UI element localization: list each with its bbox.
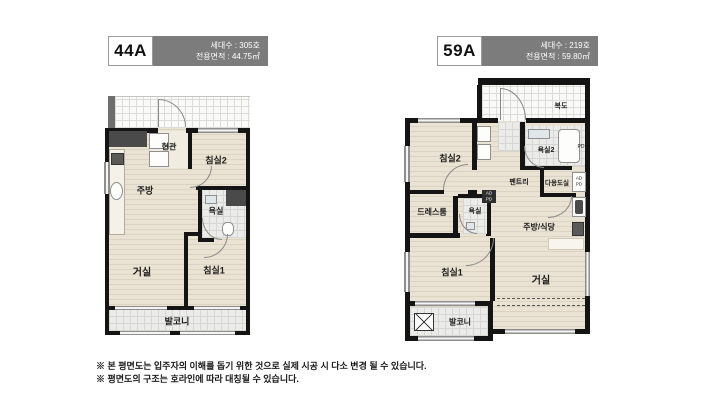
- refrigerator-door: [575, 200, 583, 214]
- room-label-living: 거실: [133, 264, 151, 279]
- room-label-entrance: 현관: [162, 142, 177, 153]
- unit-type-badge-44a: 44A: [108, 36, 153, 66]
- window: [418, 118, 460, 123]
- room-label-bedroom2: 침실2: [439, 152, 461, 165]
- wall: [188, 133, 192, 169]
- room-label-balcony: 발코니: [449, 317, 471, 328]
- disclaimer-line-1: ※ 본 평면도는 입주자의 이해를 돕기 위한 것으로 실제 시공 시 다소 변…: [96, 360, 427, 373]
- room-label-bath: 욕실: [469, 206, 482, 216]
- room-label-bedroom2: 침실2: [205, 154, 227, 167]
- window: [194, 306, 240, 310]
- expansion-dashed-line: [497, 298, 585, 299]
- wall: [453, 196, 458, 234]
- window: [404, 146, 410, 182]
- room-label-utility: 다용도실: [545, 177, 569, 187]
- unit-area: 전용면적 : 59.80㎡: [482, 51, 590, 62]
- escape-hatch-icon: [414, 313, 434, 331]
- unit-info-box-44a: 세대수 : 305호 전용면적 : 44.75㎡: [153, 36, 268, 66]
- room-label-corridor: 복도: [555, 101, 568, 111]
- door-leaf: [500, 88, 501, 120]
- window: [180, 331, 235, 335]
- room-label-balcony: 발코니: [165, 315, 190, 328]
- window: [404, 252, 410, 292]
- closet: [477, 144, 491, 160]
- corridor-59a: [482, 85, 590, 122]
- room-label-bath2: 욕실2: [538, 145, 555, 155]
- stove-icon: [572, 222, 584, 236]
- window: [505, 329, 575, 334]
- expansion-dashed-line: [497, 305, 585, 306]
- kitchen-sink-icon: [110, 182, 123, 200]
- wall: [478, 78, 590, 85]
- duct-label-ad: AD: [576, 176, 582, 181]
- refrigerator-icon: [572, 197, 586, 217]
- window: [415, 301, 475, 306]
- window: [120, 331, 170, 335]
- duct-label-ad: AD: [486, 191, 492, 196]
- window: [104, 162, 110, 194]
- room-label-bath: 욕실: [209, 206, 224, 217]
- room-label-pantry: 펜트리: [509, 177, 528, 187]
- stove-icon: [111, 153, 124, 165]
- sink-icon: [205, 195, 217, 204]
- wall: [540, 168, 544, 196]
- room-label-living: 거실: [532, 272, 550, 287]
- wall: [246, 128, 250, 310]
- closet: [477, 126, 491, 142]
- wall: [488, 301, 493, 341]
- room-label-bedroom1: 침실1: [441, 266, 463, 279]
- wall: [410, 190, 444, 194]
- unit-count: 세대수 : 305호: [153, 40, 260, 51]
- wall: [477, 85, 482, 122]
- unit-area: 전용면적 : 44.75㎡: [153, 51, 260, 62]
- unit-info-box-59a: 세대수 : 219호 전용면적 : 59.80㎡: [482, 36, 598, 66]
- duct-label-pd: PD: [576, 182, 582, 187]
- wall: [184, 232, 188, 306]
- window: [418, 336, 474, 341]
- unit-type-label: 59A: [443, 41, 476, 61]
- shoe-closet: [149, 151, 169, 167]
- wall: [526, 118, 590, 123]
- cabinet-block: [109, 131, 147, 147]
- window: [115, 306, 167, 310]
- duct-label-pd: PD: [578, 144, 585, 150]
- kitchen-counter: [548, 238, 584, 250]
- window: [585, 252, 590, 296]
- room-label-bedroom1: 침실1: [203, 264, 225, 277]
- unit-count: 세대수 : 219호: [482, 40, 590, 51]
- window: [198, 128, 238, 133]
- room-label-dressroom: 드레스룸: [417, 207, 446, 218]
- sink-icon: [528, 129, 550, 139]
- corridor-end-wall: [108, 96, 115, 128]
- door-leaf: [158, 99, 159, 127]
- floorplan-sheet: 44A 세대수 : 305호 전용면적 : 44.75㎡ 59A 세대수 : 2…: [0, 0, 720, 405]
- wall: [482, 118, 498, 123]
- disclaimer-line-2: ※ 평면도의 구조는 호라인에 따라 대칭될 수 있습니다.: [96, 373, 299, 386]
- duct-label-pd: PD: [486, 197, 492, 202]
- room-label-kitchen-dining: 주방/식당: [523, 222, 555, 233]
- duct-box: [226, 190, 246, 206]
- wall: [520, 166, 572, 170]
- unit-type-badge-59a: 59A: [437, 36, 482, 66]
- room-label-kitchen: 주방: [137, 184, 154, 197]
- unit-type-label: 44A: [114, 41, 147, 61]
- wall: [410, 233, 460, 238]
